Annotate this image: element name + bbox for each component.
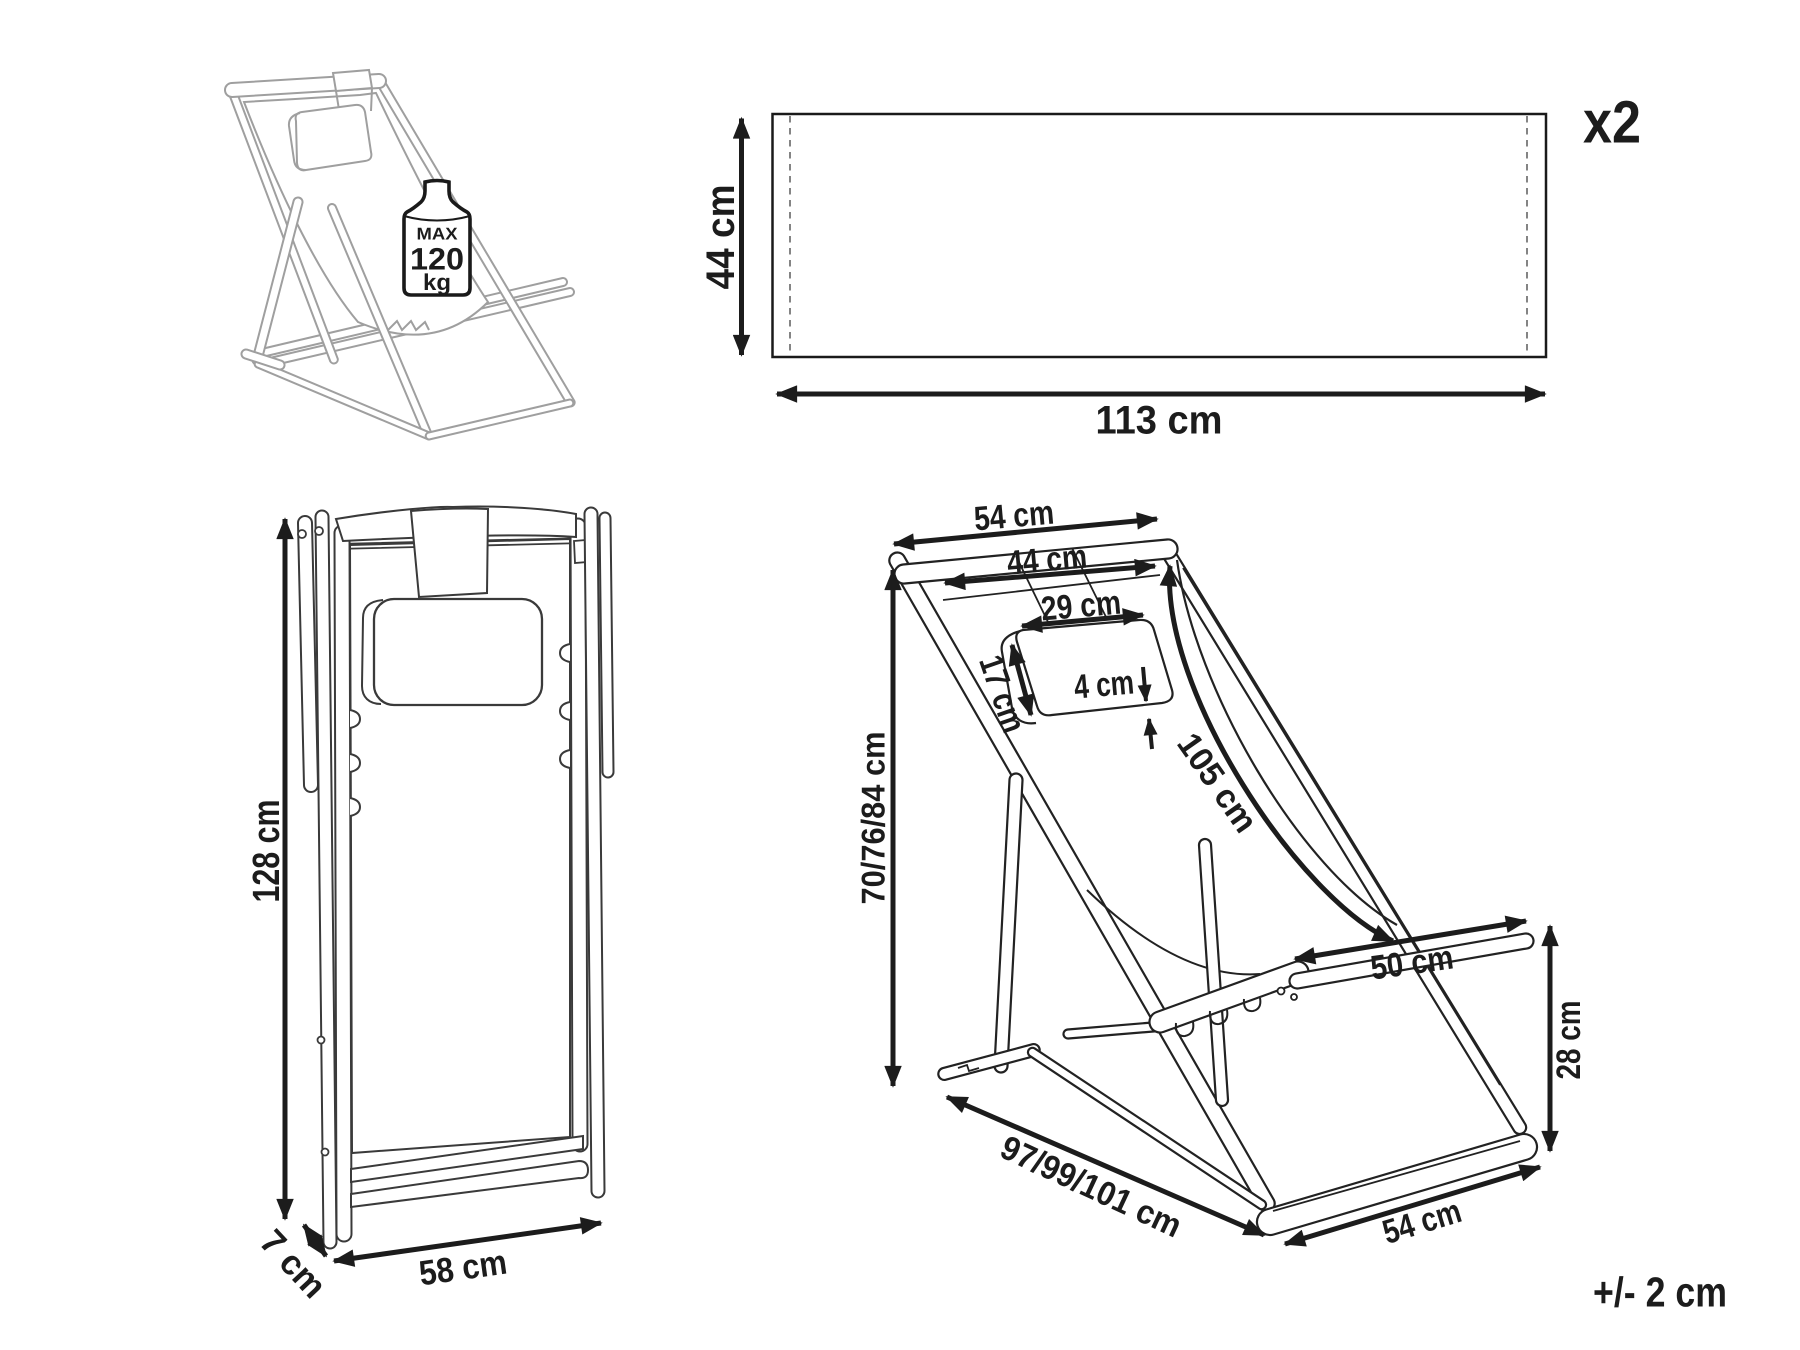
svg-text:28 cm: 28 cm [1550,1001,1588,1080]
svg-text:128 cm: 128 cm [246,800,288,903]
svg-text:113 cm: 113 cm [1096,399,1223,443]
svg-text:70/76/84 cm: 70/76/84 cm [855,732,892,905]
svg-text:x2: x2 [1583,89,1641,156]
svg-text:44 cm: 44 cm [699,185,743,290]
svg-text:kg: kg [423,269,451,295]
svg-text:54 cm: 54 cm [972,494,1055,539]
svg-text:44 cm: 44 cm [1005,538,1088,583]
svg-text:29 cm: 29 cm [1039,584,1122,629]
svg-text:4 cm: 4 cm [1072,663,1135,706]
svg-text:+/- 2 cm: +/- 2 cm [1593,1269,1727,1316]
